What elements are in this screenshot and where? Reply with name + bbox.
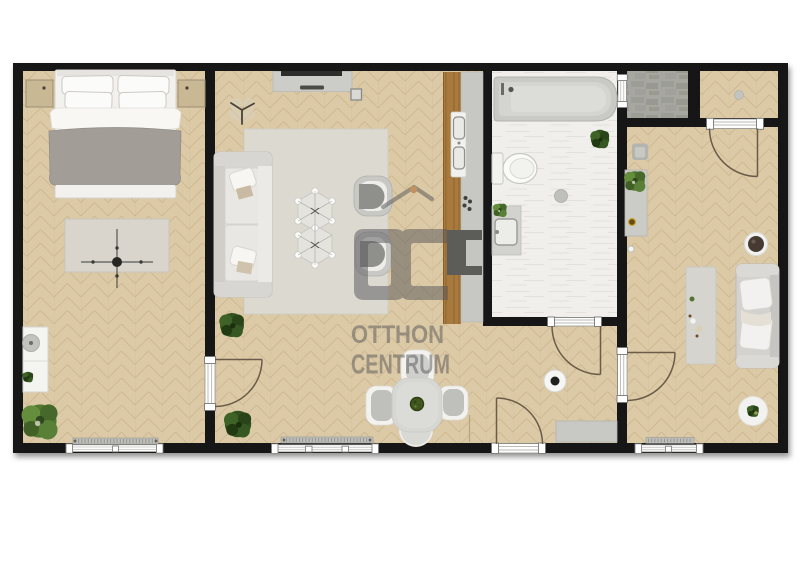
svg-text:CENTRUM: CENTRUM: [351, 349, 450, 380]
svg-text:OTTHON: OTTHON: [351, 321, 444, 349]
